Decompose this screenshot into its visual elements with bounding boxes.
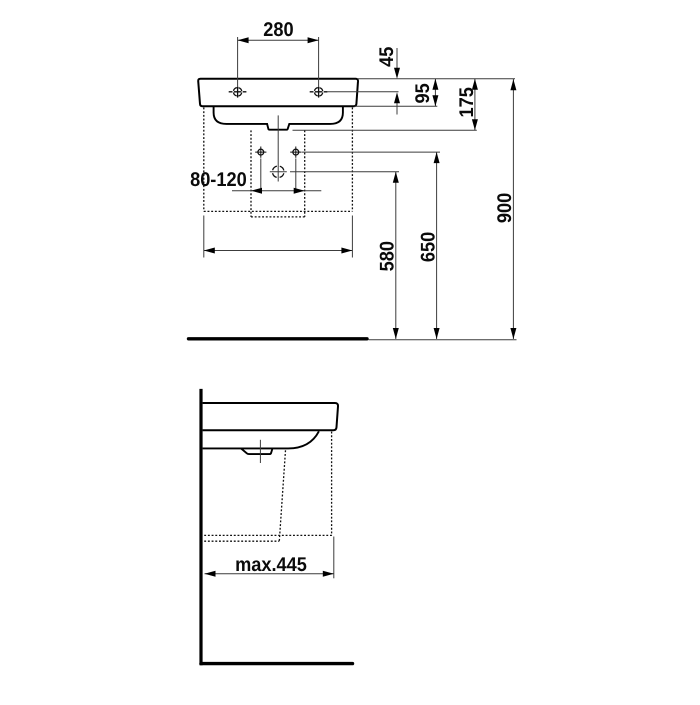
svg-text:45: 45 <box>376 47 398 67</box>
svg-text:650: 650 <box>418 232 440 262</box>
svg-text:280: 280 <box>263 19 293 41</box>
svg-text:175: 175 <box>456 87 478 117</box>
svg-text:580: 580 <box>377 241 399 271</box>
svg-text:max.445: max.445 <box>235 554 307 576</box>
svg-text:900: 900 <box>494 193 516 223</box>
svg-text:80-120: 80-120 <box>190 169 247 191</box>
svg-text:95: 95 <box>412 83 434 103</box>
